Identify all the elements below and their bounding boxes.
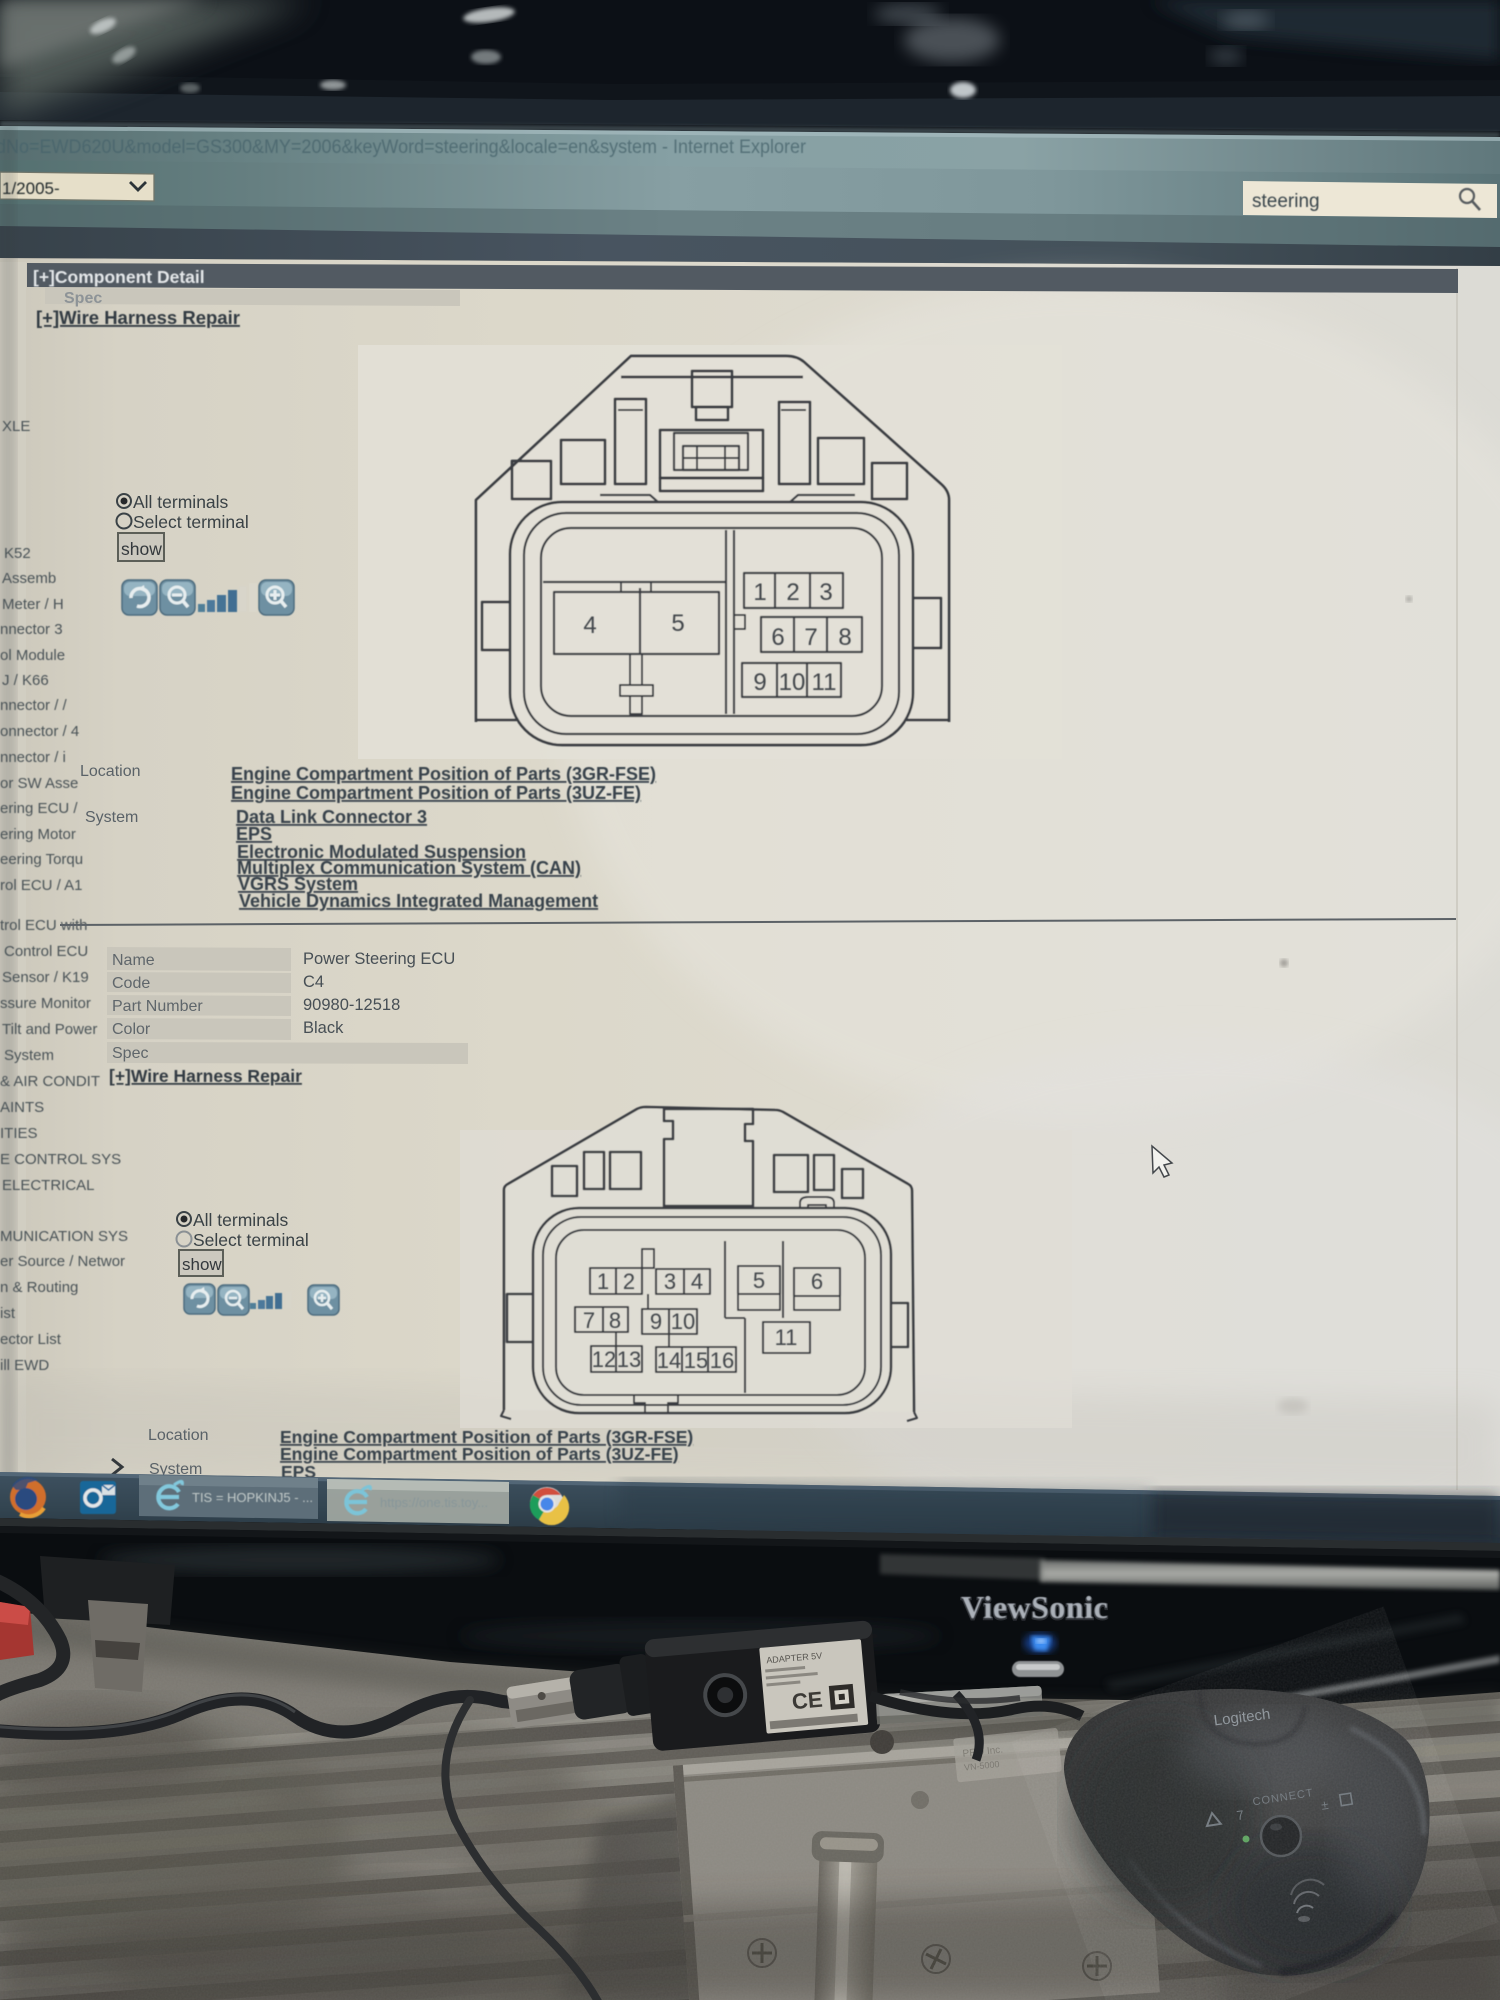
svg-text:Control ECU: Control ECU [4, 943, 88, 960]
svg-text:Location: Location [148, 1427, 209, 1444]
svg-text:Code: Code [112, 975, 150, 992]
svg-text:onnector / 4: onnector / 4 [0, 723, 79, 740]
svg-text:Name: Name [112, 952, 155, 969]
svg-text:MUNICATION SYS: MUNICATION SYS [0, 1228, 128, 1245]
svg-text:nnector 3: nnector 3 [0, 621, 63, 638]
svg-text:[+]Wire Harness Repair: [+]Wire Harness Repair [109, 1066, 302, 1086]
svg-text:Engine Compartment Position o: Engine Compartment Position of Parts (3U… [280, 1444, 679, 1464]
svg-text:14: 14 [657, 1348, 681, 1373]
svg-text:All terminals: All terminals [133, 492, 229, 512]
svg-text:steering: steering [1252, 191, 1320, 212]
svg-text:Engine Compartment Position o: Engine Compartment Position of Parts (3G… [231, 764, 656, 784]
svg-text:Sensor / K19: Sensor / K19 [2, 969, 89, 986]
svg-text:dNo=EWD620U&model=GS300&MY=200: dNo=EWD620U&model=GS300&MY=2006&keyWord=… [0, 136, 806, 158]
svg-text:3: 3 [664, 1269, 676, 1294]
svg-text:8: 8 [838, 624, 851, 651]
svg-text:Black: Black [303, 1019, 344, 1037]
svg-text:7: 7 [583, 1308, 595, 1333]
svg-text:& AIR CONDIT: & AIR CONDIT [0, 1073, 100, 1090]
svg-text:12: 12 [592, 1347, 616, 1372]
svg-text:90980-12518: 90980-12518 [303, 996, 400, 1014]
svg-text:3: 3 [819, 579, 832, 606]
svg-text:ering ECU /: ering ECU / [0, 800, 78, 817]
svg-text:All terminals: All terminals [193, 1210, 289, 1230]
svg-text:Location: Location [80, 763, 141, 780]
svg-text:show: show [182, 1255, 222, 1274]
svg-text:Color: Color [112, 1021, 151, 1038]
svg-text:TIS = HOPKINJ5 - ...: TIS = HOPKINJ5 - ... [192, 1490, 313, 1505]
svg-text:Vehicle Dynamics Integrated Ma: Vehicle Dynamics Integrated Management [239, 891, 598, 911]
svg-text:Tilt and Power: Tilt and Power [2, 1021, 97, 1038]
svg-text:Power Steering ECU: Power Steering ECU [303, 950, 455, 968]
svg-text:ering Motor: ering Motor [0, 826, 76, 843]
svg-text:er Source / Networ: er Source / Networ [0, 1253, 125, 1270]
svg-text:nnector / /: nnector / / [0, 697, 68, 714]
svg-text:1: 1 [753, 579, 766, 606]
svg-text:2: 2 [786, 579, 799, 606]
svg-text:show: show [121, 539, 162, 559]
svg-text:Assemb: Assemb [2, 570, 56, 587]
svg-text:5: 5 [753, 1268, 765, 1293]
svg-text:System: System [85, 809, 138, 826]
svg-text:XLE: XLE [2, 418, 30, 435]
svg-text:ector List: ector List [0, 1331, 62, 1348]
svg-text:13: 13 [617, 1347, 641, 1372]
svg-text:15: 15 [684, 1348, 708, 1373]
svg-text:6: 6 [811, 1269, 823, 1294]
svg-text:K52: K52 [4, 545, 31, 562]
svg-text:Meter / H: Meter / H [2, 596, 64, 613]
svg-text:7: 7 [804, 624, 817, 651]
svg-text:4: 4 [691, 1269, 703, 1294]
svg-text:eering Torqu: eering Torqu [0, 851, 83, 868]
svg-text:rol ECU / A1: rol ECU / A1 [0, 877, 83, 894]
svg-text:ill EWD: ill EWD [0, 1357, 49, 1374]
svg-text:4: 4 [583, 612, 596, 639]
svg-text:Spec: Spec [64, 290, 102, 307]
svg-text:11: 11 [812, 669, 837, 696]
svg-text:10: 10 [671, 1309, 695, 1334]
svg-text:9: 9 [650, 1309, 662, 1334]
svg-text:8: 8 [609, 1308, 621, 1333]
svg-text:nnector / i: nnector / i [0, 749, 66, 766]
svg-text:10: 10 [779, 669, 806, 696]
svg-text:ssure Monitor: ssure Monitor [0, 995, 91, 1012]
svg-text:https://one.tis.toy...: https://one.tis.toy... [380, 1495, 488, 1510]
svg-text:Spec: Spec [112, 1045, 148, 1062]
svg-text:CE: CE [791, 1687, 824, 1715]
svg-text:[+]Component Detail: [+]Component Detail [33, 267, 205, 287]
svg-text:Part Number: Part Number [112, 998, 203, 1015]
svg-text:9: 9 [753, 669, 766, 696]
svg-text:ist: ist [0, 1305, 16, 1322]
svg-text:E CONTROL SYS: E CONTROL SYS [0, 1151, 121, 1168]
svg-text:11: 11 [775, 1325, 798, 1350]
svg-text:ITIES: ITIES [0, 1125, 38, 1142]
svg-text:ol Module: ol Module [0, 647, 65, 664]
svg-text:ELECTRICAL: ELECTRICAL [2, 1177, 95, 1194]
svg-text:1: 1 [597, 1269, 609, 1294]
svg-text:ViewSonic: ViewSonic [961, 1589, 1108, 1625]
svg-text:Select terminal: Select terminal [133, 512, 249, 532]
svg-text:[+]Wire Harness Repair: [+]Wire Harness Repair [36, 307, 240, 328]
svg-text:Select terminal: Select terminal [193, 1230, 309, 1250]
svg-text:Engine Compartment Position o: Engine Compartment Position of Parts (3U… [231, 783, 641, 803]
svg-text:J / K66: J / K66 [2, 672, 49, 689]
svg-text:System: System [4, 1047, 54, 1064]
svg-text:AINTS: AINTS [0, 1099, 44, 1116]
svg-text:C4: C4 [303, 973, 324, 991]
svg-text:n & Routing: n & Routing [0, 1279, 78, 1296]
svg-text:EPS: EPS [236, 824, 272, 844]
svg-text:or SW Asse: or SW Asse [0, 775, 78, 792]
svg-text:6: 6 [771, 624, 784, 651]
svg-text:16: 16 [710, 1348, 734, 1373]
svg-text:2: 2 [623, 1269, 635, 1294]
svg-text:5: 5 [671, 610, 684, 637]
